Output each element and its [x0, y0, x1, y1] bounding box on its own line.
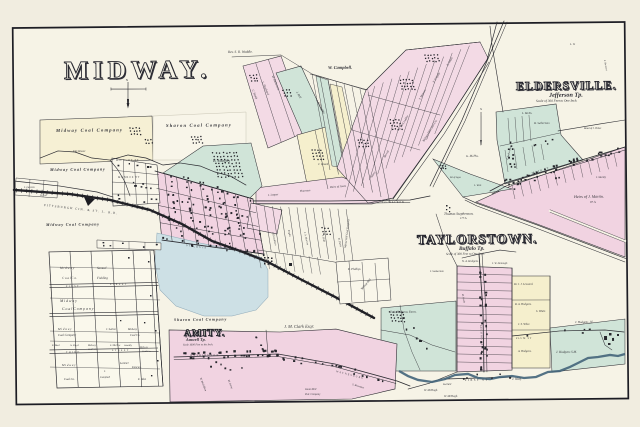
svg-text:Pud. Company: Pud. Company: [304, 393, 321, 396]
svg-text:Scale of 300 Feet to One Inch.: Scale of 300 Feet to One Inch.: [446, 252, 485, 256]
svg-text:FIRST: FIRST: [66, 285, 80, 288]
svg-text:Latimer: Latimer: [119, 362, 130, 365]
svg-text:Midway: Midway: [127, 328, 138, 331]
svg-text:Gauntly: Gauntly: [124, 344, 133, 347]
svg-text:Coal Co.: Coal Co.: [64, 377, 75, 381]
svg-text:HICKORY ST: HICKORY ST: [116, 159, 139, 162]
svg-text:Rev. S. R. Waddle.: Rev. S. R. Waddle.: [227, 50, 253, 54]
svg-text:M i d w a y: M i d w a y: [59, 299, 77, 303]
svg-text:Scale of 300 Feet to One Inch.: Scale of 300 Feet to One Inch.: [536, 99, 578, 103]
svg-text:Scale 1600 Feet to the Inch.: Scale 1600 Feet to the Inch.: [183, 343, 214, 346]
svg-text:E. Akin: E. Akin: [137, 378, 147, 381]
svg-text:B. Murphy: B. Murphy: [213, 158, 230, 163]
svg-text:Sharon Coal Company: Sharon Coal Company: [166, 122, 232, 128]
svg-text:M i d w a y: M i d w a y: [57, 327, 72, 331]
svg-text:Red Mill: Red Mill: [442, 383, 452, 386]
svg-text:Amwell Tp.: Amwell Tp.: [185, 337, 206, 342]
svg-text:J. Green: J. Green: [318, 162, 329, 166]
svg-text:A. Lloyd: A. Lloyd: [69, 344, 79, 347]
svg-text:Midway: Midway: [87, 344, 97, 347]
svg-text:TAYLORSTOWN.: TAYLORSTOWN.: [417, 231, 538, 247]
svg-text:A. Hodgens.: A. Hodgens.: [517, 350, 532, 353]
svg-text:L. W.: L. W.: [569, 43, 576, 46]
svg-text:Fielding: Fielding: [96, 276, 108, 280]
svg-text:Samuel: Samuel: [97, 266, 107, 270]
svg-text:S. White.: S. White.: [536, 310, 546, 313]
svg-text:Midway Coal Company: Midway Coal Company: [49, 166, 106, 172]
svg-text:Entiries.: Entiries.: [131, 366, 142, 369]
svg-text:L. Wills: L. Wills: [473, 184, 481, 187]
svg-text:C o a l C o.: C o a l C o.: [62, 276, 77, 280]
svg-text:Rd of Signs: Rd of Signs: [449, 176, 461, 179]
svg-text:M i d w a y: M i d w a y: [59, 266, 75, 270]
svg-text:97 A.: 97 A.: [590, 200, 597, 204]
svg-text:Road of J. Holes: Road of J. Holes: [583, 127, 601, 130]
svg-text:J. S. Wilse.: J. S. Wilse.: [518, 323, 531, 326]
svg-text:File House: File House: [72, 150, 86, 153]
svg-text:Coal Co.: Coal Co.: [142, 350, 151, 353]
svg-text:THIRD: THIRD: [66, 351, 81, 354]
svg-text:J. Wolf.: J. Wolf.: [512, 377, 522, 381]
svg-text:Steam Mill: Steam Mill: [305, 388, 317, 391]
svg-text:A. Pott: A. Pott: [39, 194, 47, 197]
svg-text:J. Hodgens J.E.: J. Hodgens J.E.: [575, 320, 594, 324]
svg-text:Dr J. J. Leonard.: Dr J. J. Leonard.: [513, 283, 533, 286]
svg-text:Coal Company: Coal Company: [58, 333, 77, 337]
svg-text:G. McPhs.: G. McPhs.: [466, 154, 479, 158]
svg-text:E. Deal: E. Deal: [51, 344, 60, 347]
svg-text:J. W. Donough: J. W. Donough: [492, 262, 508, 265]
svg-text:STREET: STREET: [112, 349, 130, 352]
svg-text:FIRST ST: FIRST ST: [465, 379, 489, 382]
svg-text:TO WALKER: TO WALKER: [382, 201, 405, 204]
svg-text:C o a l C o m p a n y: C o a l C o m p a n y: [62, 307, 94, 311]
svg-text:L. McPo.: L. McPo.: [521, 112, 533, 115]
svg-text:W. Campbell.: W. Campbell.: [328, 65, 352, 70]
svg-text:WASHINGTON: WASHINGTON: [190, 354, 220, 357]
svg-text:E. Phillips: E. Phillips: [347, 267, 362, 271]
svg-text:177 A.: 177 A.: [460, 217, 468, 220]
svg-text:T. A. Hodgens Farm.: T. A. Hodgens Farm.: [390, 310, 417, 314]
svg-text:R. A. Hodgens.: R. A. Hodgens.: [514, 303, 532, 306]
svg-text:N: N: [480, 108, 482, 111]
svg-text:J. Sutherman: J. Sutherman: [430, 270, 444, 273]
svg-text:Midway Coal Company: Midway Coal Company: [45, 221, 100, 227]
svg-text:W. McHugh.: W. McHugh.: [424, 389, 438, 392]
svg-text:Midway: Midway: [139, 346, 149, 349]
svg-text:Coal Co.: Coal Co.: [88, 348, 97, 351]
svg-text:Coal Co.: Coal Co.: [130, 334, 140, 337]
svg-text:PLUM ST: PLUM ST: [516, 337, 532, 340]
svg-text:J. Marthy: J. Marthy: [596, 176, 607, 179]
svg-text:H. Sutherman: H. Sutherman: [533, 122, 550, 125]
svg-text:MONROE ST: MONROE ST: [118, 176, 140, 179]
svg-text:ELDERSVILLE.: ELDERSVILLE.: [516, 78, 617, 93]
svg-text:Heirs of J. Martin.: Heirs of J. Martin.: [573, 194, 604, 199]
svg-text:J. Lawson: J. Lawson: [24, 186, 35, 189]
svg-text:J. M. Clark Esqr.: J. M. Clark Esqr.: [284, 324, 314, 329]
svg-text:S. Marlow: S. Marlow: [110, 344, 121, 347]
svg-text:STREET: STREET: [110, 283, 128, 286]
svg-text:W. McHugh.: W. McHugh.: [444, 395, 458, 398]
svg-text:Sharon Coal Company: Sharon Coal Company: [174, 317, 227, 323]
svg-text:Thomas Stephenson.: Thomas Stephenson.: [444, 212, 474, 216]
svg-text:J. Hodgens S.M.: J. Hodgens S.M.: [556, 350, 577, 354]
svg-text:MIDWAY.: MIDWAY.: [64, 55, 212, 85]
svg-text:M i d w a y: M i d w a y: [61, 363, 76, 367]
svg-text:Campbell: Campbell: [100, 376, 110, 379]
svg-text:J. Sutton: J. Sutton: [106, 328, 116, 331]
svg-text:Midway Coal Company: Midway Coal Company: [55, 127, 123, 133]
svg-text:N. A. Hodgens.: N. A. Hodgens.: [461, 260, 479, 263]
